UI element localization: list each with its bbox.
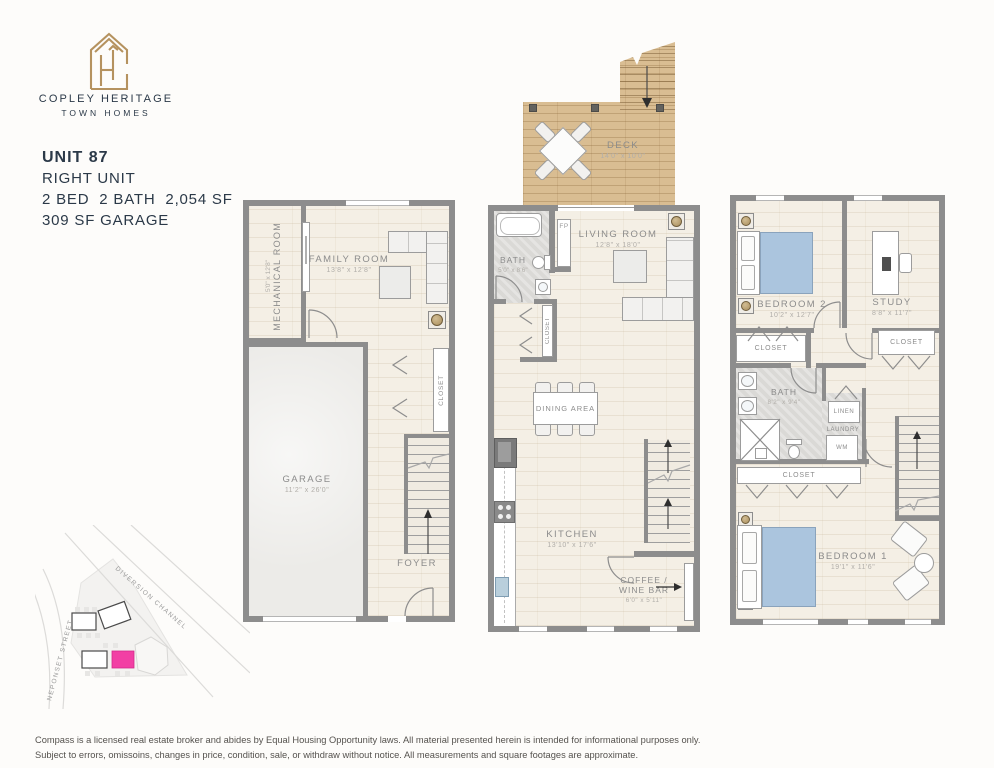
study-dims: 8'8" x 11'7": [848, 310, 936, 318]
unit-garage-size: 309 SF GARAGE: [42, 210, 233, 231]
sofa-sectional: [426, 231, 448, 304]
coffee-dims: 6'0" x 5'11": [610, 597, 678, 605]
kitchen-name: KITCHEN: [546, 529, 598, 540]
window: [854, 195, 882, 201]
unit-number: UNIT 87: [42, 147, 233, 168]
window: [905, 619, 931, 625]
bedroom2-label: BEDROOM 2 10'2" x 12'7": [742, 299, 842, 321]
bedroom2-dims: 10'2" x 12'7": [742, 312, 842, 320]
toilet-tank: [544, 255, 551, 270]
garage-door: [263, 616, 356, 622]
refrigerator: [494, 438, 517, 468]
living-room-dims: 12'8" x 18'0": [558, 242, 678, 250]
laundry-label: LAUNDRY: [820, 427, 866, 434]
bedroom1-name: BEDROOM 1: [818, 551, 888, 562]
window: [587, 626, 614, 632]
floorplan-main-level: FP CLOSET DINING AREA: [488, 205, 700, 632]
coffee-table: [613, 250, 647, 283]
bed-headboard: [737, 231, 760, 295]
bath-sink: [738, 372, 757, 390]
wall: [806, 328, 811, 368]
sofa-sectional: [622, 297, 694, 321]
bath3-dims: 8'2" x 9'4": [756, 399, 812, 407]
closet-label: CLOSET: [438, 375, 445, 406]
closet-study: CLOSET: [878, 330, 935, 355]
deck-dims: 14'0" x 10'0": [591, 153, 655, 161]
closet-label: CLOSET: [783, 472, 816, 479]
disclaimer-line1: Compass is a licensed real estate broker…: [35, 733, 975, 748]
deck-stairs: [620, 46, 675, 112]
brand-tagline: TOWN HOMES: [36, 108, 176, 118]
brand-name: COPLEY HERITAGE: [36, 93, 176, 105]
deck-post: [529, 104, 537, 112]
coffee-wine-bar-label: COFFEE / WINE BAR 6'0" x 5'11": [610, 575, 678, 605]
closet-hall: CLOSET: [737, 467, 861, 484]
ceiling-speaker: [428, 311, 446, 329]
living-room-label: LIVING ROOM 12'8" x 18'0": [558, 229, 678, 251]
living-room-name: LIVING ROOM: [579, 229, 658, 240]
closet-label: CLOSET: [545, 317, 551, 344]
disclaimer-line2: Subject to errors, omissoins, changes in…: [35, 748, 975, 763]
floorplan-page: COPLEY HERITAGE TOWN HOMES UNIT 87 RIGHT…: [0, 0, 994, 768]
deck-post: [656, 104, 664, 112]
wall: [736, 328, 814, 333]
window: [650, 626, 677, 632]
dining-table: DINING AREA: [533, 392, 598, 425]
window: [756, 195, 784, 201]
dining-chair: [535, 424, 551, 436]
bathtub: [496, 213, 542, 237]
coffee-line2: WINE BAR: [619, 585, 669, 595]
dining-chair: [579, 424, 595, 436]
bedroom1-dims: 19'1" x 11'6": [793, 564, 913, 572]
foyer-label: FOYER: [387, 558, 447, 569]
road2-label: NEPONSET STREET: [46, 618, 75, 701]
bedroom2-name: BEDROOM 2: [757, 299, 827, 310]
disclaimer: Compass is a licensed real estate broker…: [35, 733, 975, 762]
wall: [363, 342, 368, 616]
bed-mattress: [760, 232, 813, 294]
study-name: STUDY: [872, 297, 911, 308]
site-map: DIVERSION CHANNEL NEPONSET STREET: [35, 525, 250, 710]
mechanical-name: MECHANICAL ROOM: [272, 222, 282, 331]
wall: [822, 368, 826, 401]
entry-door-opening: [388, 616, 406, 622]
mechanical-room: 5'0" x 12'8" MECHANICAL ROOM: [251, 220, 295, 332]
window: [346, 200, 409, 206]
deck-name: DECK: [607, 140, 639, 151]
wall: [895, 516, 939, 521]
wall: [249, 342, 368, 347]
deck-area: DECK 14'0" x 10'0": [523, 40, 675, 210]
stove: [494, 501, 515, 523]
ceiling-speaker: [738, 213, 754, 229]
closet-label: CLOSET: [890, 339, 923, 346]
floorplan-ground-level: CLOSET 5'0" x 12'8" MECHANICAL ROOM FAMI…: [243, 200, 455, 622]
bed-headboard: [737, 525, 762, 609]
wall: [862, 388, 866, 461]
bath-sink: [738, 397, 757, 415]
unit-info: UNIT 87 RIGHT UNIT 2 BED 2 BATH 2,054 SF…: [42, 147, 233, 231]
floorplan-upper-level: BEDROOM 2 10'2" x 12'7" STUDY 8'8" x 11'…: [730, 195, 945, 625]
kitchen-sink: [495, 577, 509, 597]
highlighted-unit: [112, 651, 134, 668]
wall: [842, 201, 847, 328]
bath3-label: BATH 8'2" x 9'4": [756, 387, 812, 407]
closet-main: CLOSET: [542, 305, 553, 357]
garage-name: GARAGE: [282, 474, 331, 485]
dining-label: DINING AREA: [536, 404, 595, 413]
linen-label: LINEN: [834, 409, 855, 415]
family-room-label: FAMILY ROOM 13'8" x 12'8": [299, 254, 399, 276]
sliding-door-deck: [558, 205, 634, 211]
wall: [634, 551, 694, 557]
deck-label: DECK 14'0" x 10'0": [591, 140, 655, 162]
washing-machine: WM: [826, 435, 858, 461]
unit-side: RIGHT UNIT: [42, 168, 233, 189]
washer-label: WM: [836, 445, 848, 451]
unit-specs: 2 BED 2 BATH 2,054 SF: [42, 189, 233, 210]
bath-name: BATH: [500, 255, 526, 265]
family-room-name: FAMILY ROOM: [309, 254, 390, 265]
wall: [549, 267, 571, 272]
kitchen-dims: 13'10" x 17'6": [522, 542, 622, 550]
family-room-dims: 13'8" x 12'8": [299, 267, 399, 275]
wall: [494, 299, 506, 304]
bathtub-basin: [500, 217, 540, 235]
stairs-upper: [899, 416, 939, 516]
dining-chair: [557, 424, 573, 436]
desk-chair: [899, 253, 912, 273]
shower: [740, 419, 780, 461]
window: [848, 619, 868, 625]
brand-house-logo-icon: [78, 28, 140, 92]
garage-label: GARAGE 11'2" x 26'0": [257, 474, 357, 496]
window: [519, 626, 547, 632]
bath-label: BATH 5'0" x 8'6": [491, 255, 535, 275]
deck-post: [591, 104, 599, 112]
closet-label: CLOSET: [755, 345, 788, 352]
bedroom1-label: BEDROOM 1 19'1" x 11'6": [793, 551, 913, 573]
wall: [520, 357, 557, 362]
closet-bedroom2: CLOSET: [736, 335, 806, 362]
study-label: STUDY 8'8" x 11'7": [848, 297, 936, 319]
window: [763, 619, 818, 625]
side-table: [914, 553, 934, 573]
desk: [872, 231, 899, 295]
ceiling-speaker: [668, 213, 685, 230]
bath-sink: [535, 279, 551, 295]
bath-dims: 5'0" x 8'6": [491, 267, 535, 275]
bar-counter: [684, 563, 694, 621]
garage-dims: 11'2" x 26'0": [257, 487, 357, 495]
wall: [736, 363, 791, 368]
linen-closet: LINEN: [828, 401, 860, 423]
bath3-name: BATH: [771, 387, 797, 397]
stairs-main: [648, 440, 690, 543]
mechanical-dims: 5'0" x 12'8": [265, 260, 272, 292]
coffee-line1: COFFEE /: [620, 575, 667, 585]
toilet-bowl: [788, 445, 800, 459]
stairs-ground: [408, 438, 449, 554]
kitchen-label: KITCHEN 13'10" x 17'6": [522, 529, 622, 551]
closet-ground: CLOSET: [433, 348, 449, 432]
